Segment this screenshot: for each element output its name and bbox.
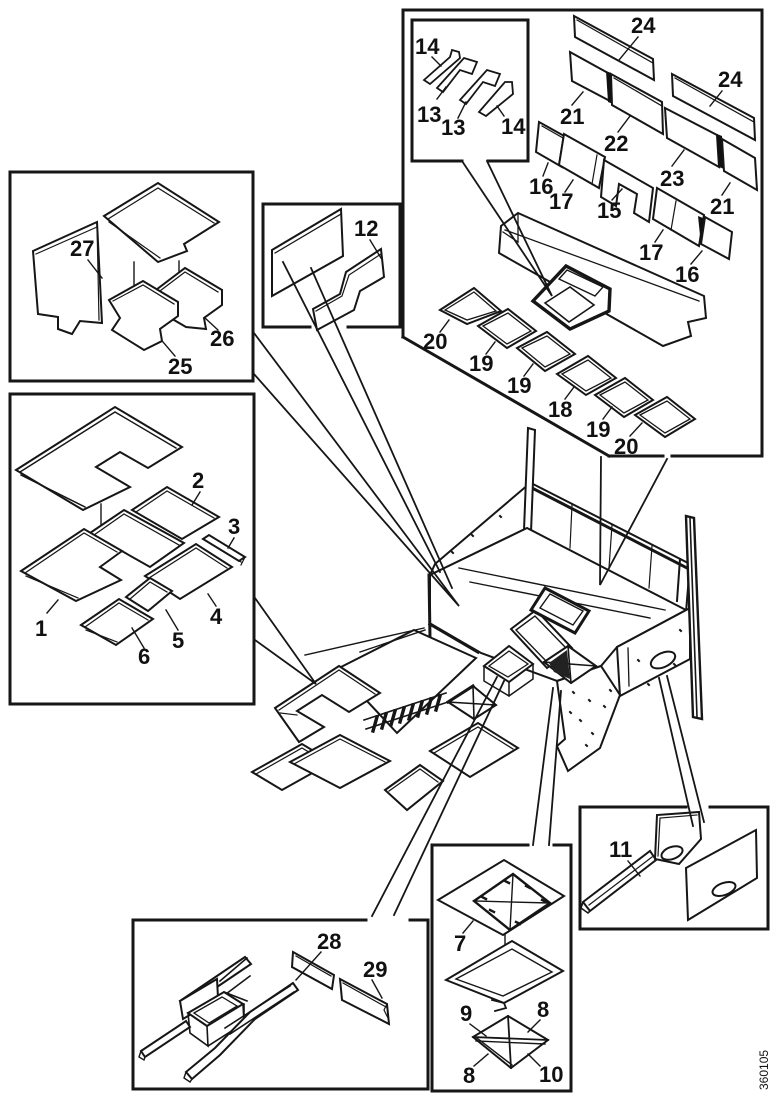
- svg-text:11: 11: [609, 837, 632, 862]
- svg-text:21: 21: [560, 104, 584, 129]
- svg-text:8: 8: [537, 997, 549, 1022]
- svg-text:26: 26: [210, 326, 234, 351]
- svg-text:4: 4: [210, 604, 223, 629]
- svg-text:1: 1: [35, 616, 47, 641]
- svg-text:14: 14: [501, 114, 526, 139]
- svg-text:24: 24: [718, 67, 743, 92]
- svg-text:20: 20: [614, 434, 638, 459]
- svg-text:5: 5: [172, 628, 184, 653]
- svg-text:15: 15: [597, 198, 621, 223]
- svg-text:20: 20: [423, 329, 447, 354]
- svg-text:29: 29: [363, 957, 387, 982]
- svg-text:12: 12: [354, 216, 378, 241]
- svg-text:7: 7: [454, 931, 466, 956]
- svg-text:2: 2: [192, 468, 204, 493]
- svg-text:17: 17: [549, 189, 573, 214]
- svg-text:17: 17: [639, 240, 663, 265]
- svg-text:18: 18: [548, 397, 572, 422]
- svg-text:27: 27: [70, 236, 94, 261]
- svg-text:14: 14: [415, 34, 440, 59]
- svg-text:22: 22: [604, 131, 628, 156]
- svg-text:10: 10: [539, 1062, 563, 1087]
- svg-text:21: 21: [710, 194, 734, 219]
- svg-text:19: 19: [586, 417, 610, 442]
- svg-text:19: 19: [507, 373, 531, 398]
- svg-text:24: 24: [631, 13, 656, 38]
- svg-text:16: 16: [675, 262, 699, 287]
- svg-text:13: 13: [441, 115, 465, 140]
- svg-text:9: 9: [460, 1001, 472, 1026]
- svg-text:13: 13: [417, 102, 441, 127]
- svg-text:28: 28: [317, 929, 341, 954]
- svg-text:23: 23: [660, 166, 684, 191]
- svg-text:19: 19: [469, 351, 493, 376]
- svg-text:25: 25: [168, 354, 192, 379]
- svg-text:360105: 360105: [757, 1050, 771, 1090]
- svg-text:3: 3: [228, 514, 240, 539]
- svg-text:8: 8: [463, 1063, 475, 1088]
